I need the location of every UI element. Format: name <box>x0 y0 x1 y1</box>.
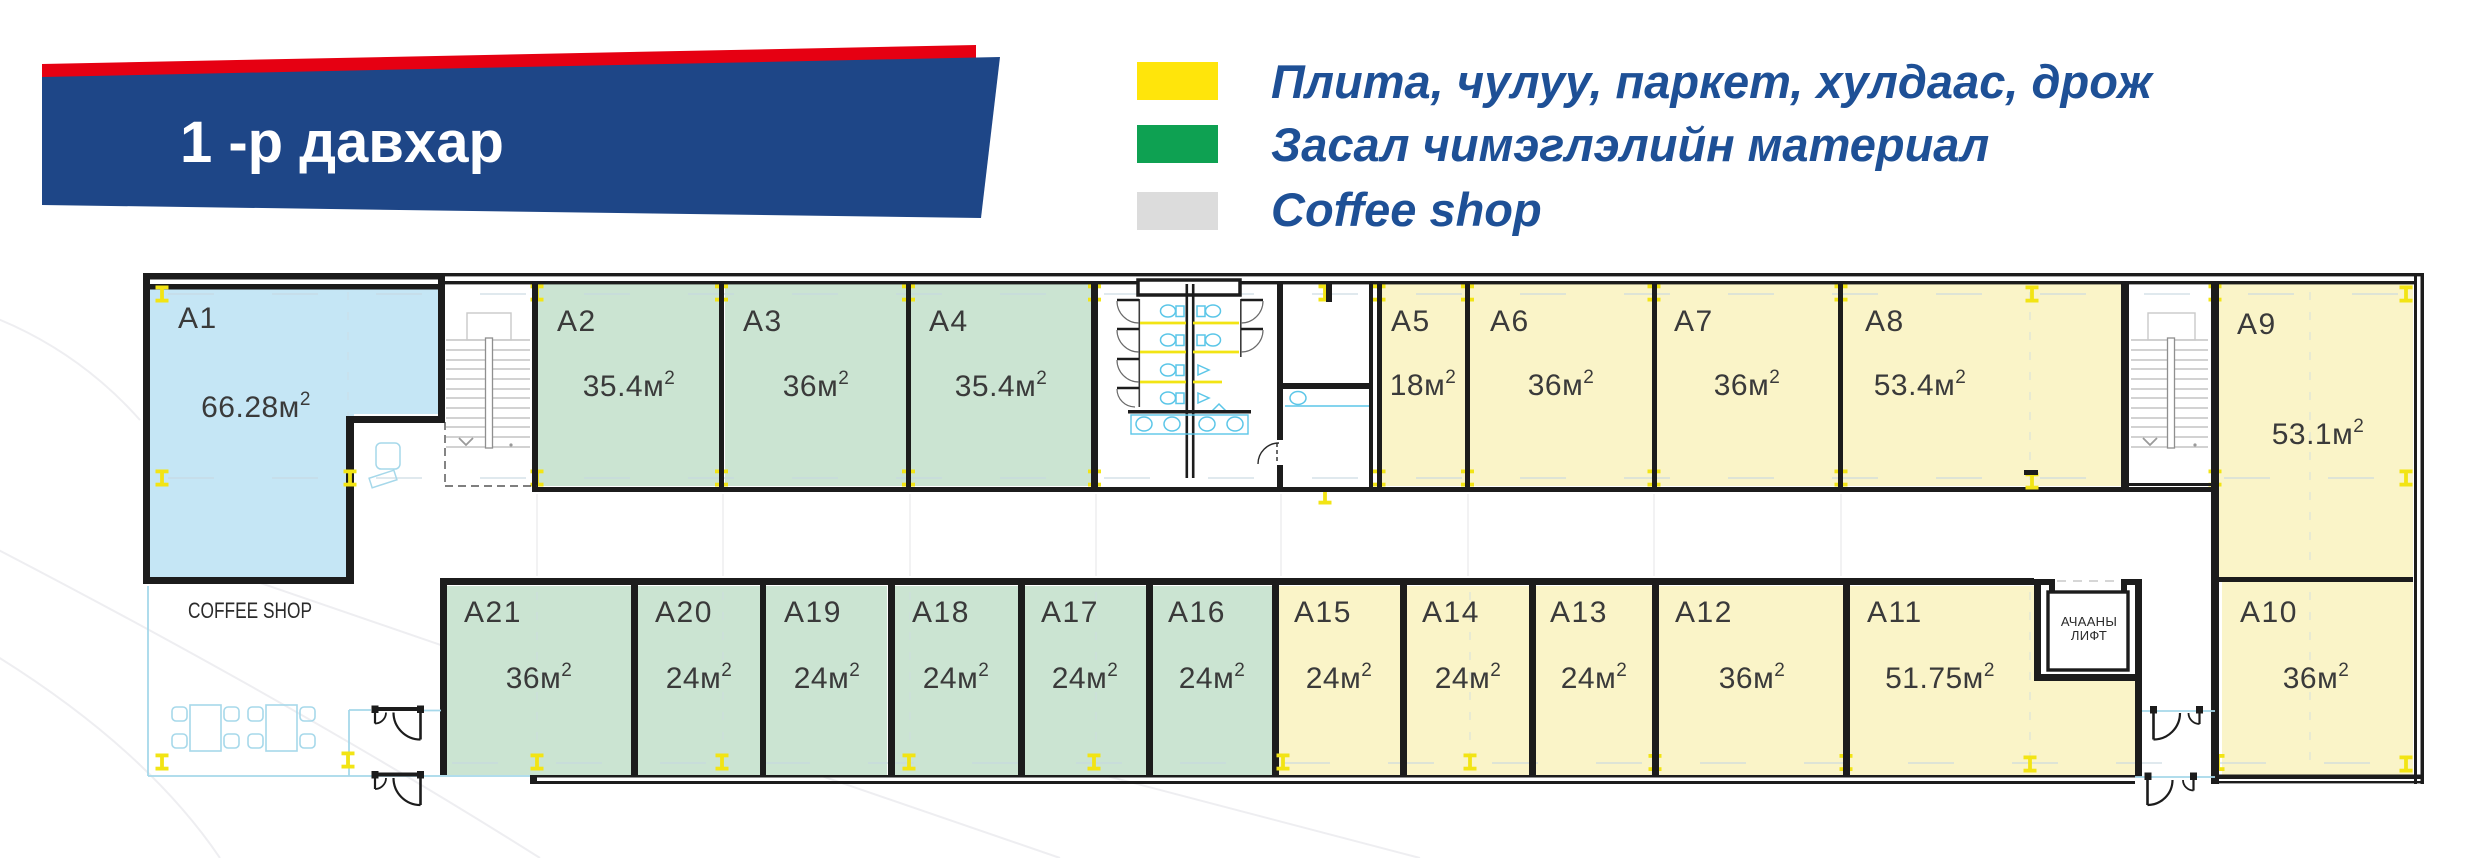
svg-text:A2: A2 <box>557 305 597 338</box>
svg-text:A3: A3 <box>743 305 783 338</box>
svg-text:A12: A12 <box>1675 596 1733 629</box>
svg-text:A8: A8 <box>1865 305 1905 338</box>
svg-text:53.4м2: 53.4м2 <box>1874 367 1967 402</box>
svg-text:A9: A9 <box>2237 308 2277 341</box>
svg-text:A14: A14 <box>1422 596 1480 629</box>
svg-text:35.4м2: 35.4м2 <box>583 368 676 403</box>
svg-text:A10: A10 <box>2240 596 2298 629</box>
svg-text:Coffee shop: Coffee shop <box>1271 183 1542 236</box>
svg-text:A7: A7 <box>1674 305 1714 338</box>
svg-text:Засал чимэглэлийн материал: Засал чимэглэлийн материал <box>1271 118 1989 171</box>
svg-text:66.28м2: 66.28м2 <box>201 389 311 424</box>
svg-text:COFFEE SHOP: COFFEE SHOP <box>188 598 312 623</box>
svg-text:A6: A6 <box>1490 305 1530 338</box>
svg-text:A16: A16 <box>1168 596 1226 629</box>
svg-text:A20: A20 <box>655 596 713 629</box>
svg-text:51.75м2: 51.75м2 <box>1885 660 1995 695</box>
svg-text:A21: A21 <box>464 596 522 629</box>
svg-text:Плита, чулуу, паркет, хулдаас,: Плита, чулуу, паркет, хулдаас, дрож <box>1271 55 2154 108</box>
svg-text:A13: A13 <box>1550 596 1608 629</box>
svg-text:35.4м2: 35.4м2 <box>955 368 1048 403</box>
svg-text:A1: A1 <box>178 302 218 335</box>
svg-text:АЧААНЫ: АЧААНЫ <box>2061 614 2117 629</box>
svg-text:A5: A5 <box>1391 305 1431 338</box>
svg-text:ЛИФТ: ЛИФТ <box>2071 628 2107 643</box>
svg-text:A4: A4 <box>929 305 969 338</box>
svg-text:A19: A19 <box>784 596 842 629</box>
svg-text:1 -р давхар: 1 -р давхар <box>180 110 504 175</box>
svg-text:A17: A17 <box>1041 596 1099 629</box>
svg-text:53.1м2: 53.1м2 <box>2272 416 2365 451</box>
svg-text:A11: A11 <box>1867 596 1923 629</box>
svg-text:A15: A15 <box>1294 596 1352 629</box>
svg-text:A18: A18 <box>912 596 970 629</box>
